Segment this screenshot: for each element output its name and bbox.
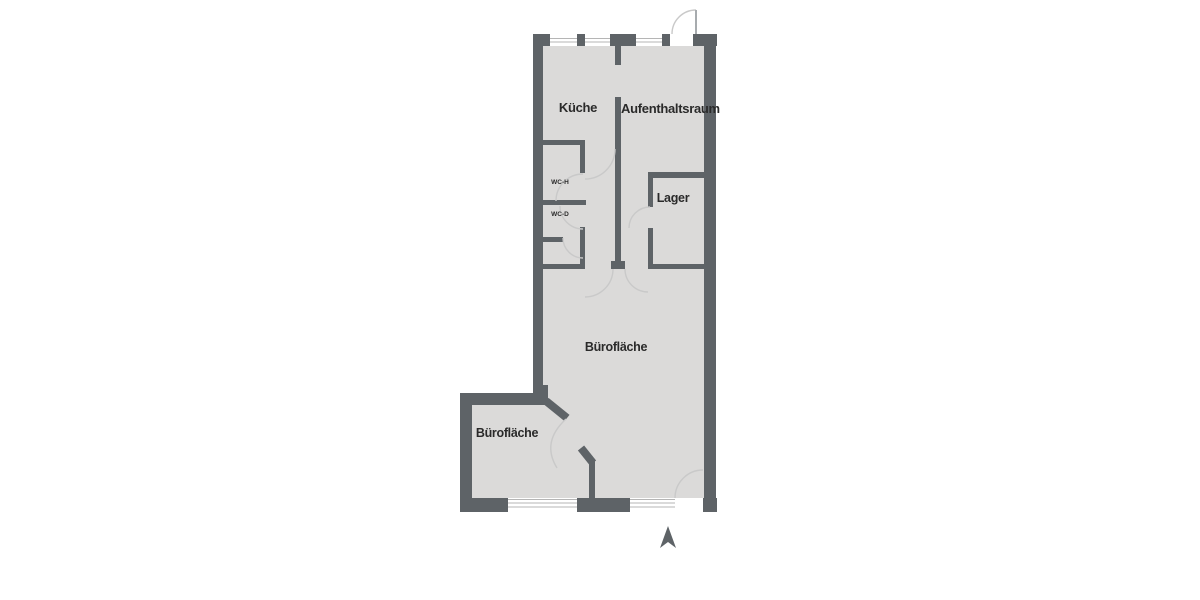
divider-wall bbox=[615, 97, 621, 266]
bottom-wall-corner bbox=[703, 498, 717, 512]
extension-left-wall bbox=[460, 393, 472, 512]
top-wall-pier bbox=[610, 34, 636, 46]
corridor-wall-left bbox=[543, 264, 585, 269]
window bbox=[585, 34, 610, 46]
corridor-wall-right bbox=[648, 264, 704, 269]
room-label-buero-small: Bürofläche bbox=[476, 426, 538, 440]
wc-h-top-wall bbox=[543, 140, 585, 145]
room-label-wc-h: WC-H bbox=[551, 179, 569, 186]
room-label-wc-d: WC-D bbox=[551, 211, 569, 218]
lager-left-wall-upper bbox=[648, 178, 653, 207]
entrance-door-arc bbox=[672, 10, 696, 34]
wc-divider-wall bbox=[543, 200, 586, 205]
window bbox=[630, 498, 675, 512]
window bbox=[508, 498, 577, 512]
lager-left-wall-lower bbox=[648, 228, 653, 266]
wc-right-wall-lower bbox=[580, 227, 585, 266]
wc-stub-wall bbox=[543, 237, 563, 242]
left-wall bbox=[533, 34, 543, 398]
window bbox=[550, 34, 577, 46]
partition-wall bbox=[589, 461, 595, 498]
room-label-lager: Lager bbox=[657, 191, 690, 205]
floor-extension bbox=[472, 405, 592, 498]
north-arrow-icon bbox=[660, 526, 676, 548]
room-label-buero-main: Bürofläche bbox=[585, 340, 647, 354]
divider-wall-stub bbox=[615, 46, 621, 65]
top-wall-pier bbox=[662, 34, 670, 46]
room-label-aufenthaltsraum: Aufenthaltsraum bbox=[621, 101, 720, 116]
bottom-wall-pier bbox=[577, 498, 630, 512]
lager-top-wall bbox=[648, 172, 704, 178]
top-wall-pier bbox=[577, 34, 585, 46]
bottom-wall-segment bbox=[460, 498, 508, 512]
corridor-center-post bbox=[611, 261, 625, 269]
floor-plan-drawing bbox=[0, 0, 1200, 600]
extension-top-wall bbox=[460, 393, 548, 405]
room-label-kueche: Küche bbox=[559, 100, 597, 115]
window bbox=[636, 34, 662, 46]
wc-right-wall-upper bbox=[580, 140, 585, 173]
floor-plan-page: Küche Aufenthaltsraum WC-H WC-D Lager Bü… bbox=[0, 0, 1200, 600]
